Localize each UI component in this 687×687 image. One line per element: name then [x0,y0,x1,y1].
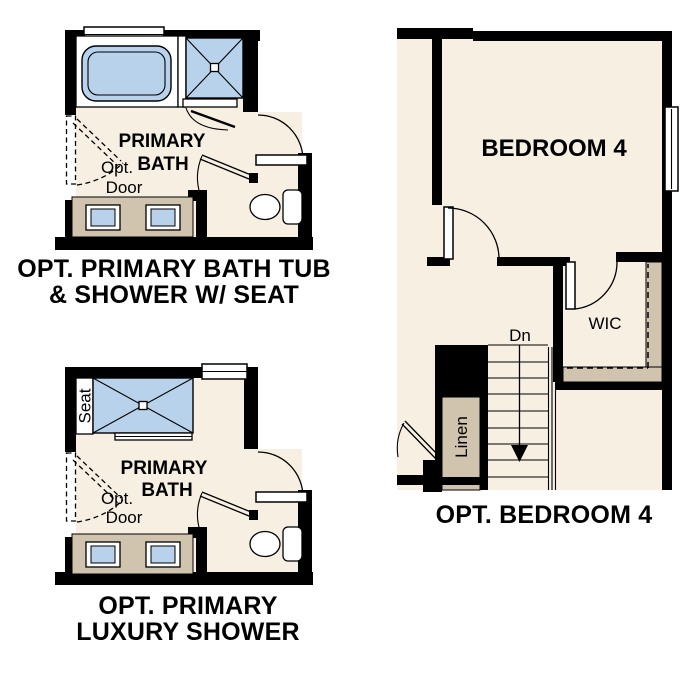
plan-opt-primary-bath-tub-shower: PRIMARY BATH Opt. Door OPT. PRIMARY BATH… [17,27,330,309]
wic-door-leaf [566,262,575,309]
opt-door-label: Door [106,178,143,197]
toilet-tank [283,190,302,224]
bedroom-door-leaf [444,207,453,259]
floorplan-drawing: PRIMARY BATH Opt. Door OPT. PRIMARY BATH… [0,0,687,687]
window [665,107,678,191]
room-label-bedroom4: BEDROOM 4 [481,135,627,162]
shower [186,38,243,98]
plan-opt-primary-luxury-shower: Seat PRIMARY BATH Opt. Door OPT. PRIMARY… [55,364,313,646]
room-label-bath: BATH [141,480,192,501]
seat-label: Seat [76,388,95,423]
room-label-primary: PRIMARY [119,131,206,152]
opt-door-label: Opt. [101,489,133,508]
tub-shower-divider [178,36,186,107]
shower-drain [211,64,219,72]
entry-door-leaf [256,492,307,502]
wic-optional-wall-zone [563,367,662,382]
wic-label: WIC [588,314,621,333]
plan-caption: OPT. PRIMARY [98,592,277,620]
toilet-bowl [250,532,280,557]
toilet-tank [283,527,302,561]
bathtub [82,46,171,101]
room-label-primary: PRIMARY [121,458,208,479]
shower-drain [139,402,147,410]
vanity [72,534,193,574]
plan-caption: OPT. PRIMARY BATH TUB [17,255,330,283]
opt-door-label: Door [106,508,143,527]
vanity [72,197,193,237]
plan-caption: OPT. BEDROOM 4 [436,501,653,529]
opt-door-label: Opt. [101,158,133,177]
shower-glass-panel [115,433,192,440]
plan-opt-bedroom-4: BEDROOM 4 WIC Dn Linen OPT. BEDROOM 4 [397,28,678,529]
room-label-bath: BATH [137,154,188,175]
plan-caption: LUXURY SHOWER [76,618,299,646]
linen-label: Linen [452,416,471,458]
window [202,364,247,379]
stairs-dn-label: Dn [509,326,531,345]
luxury-shower [93,378,193,433]
floorplan-sheet: PRIMARY BATH Opt. Door OPT. PRIMARY BATH… [0,0,687,687]
toilet-bowl [250,195,280,220]
stair-chase [435,345,488,397]
entry-door-leaf [256,155,307,165]
plan-caption: & SHOWER W/ SEAT [49,281,299,309]
